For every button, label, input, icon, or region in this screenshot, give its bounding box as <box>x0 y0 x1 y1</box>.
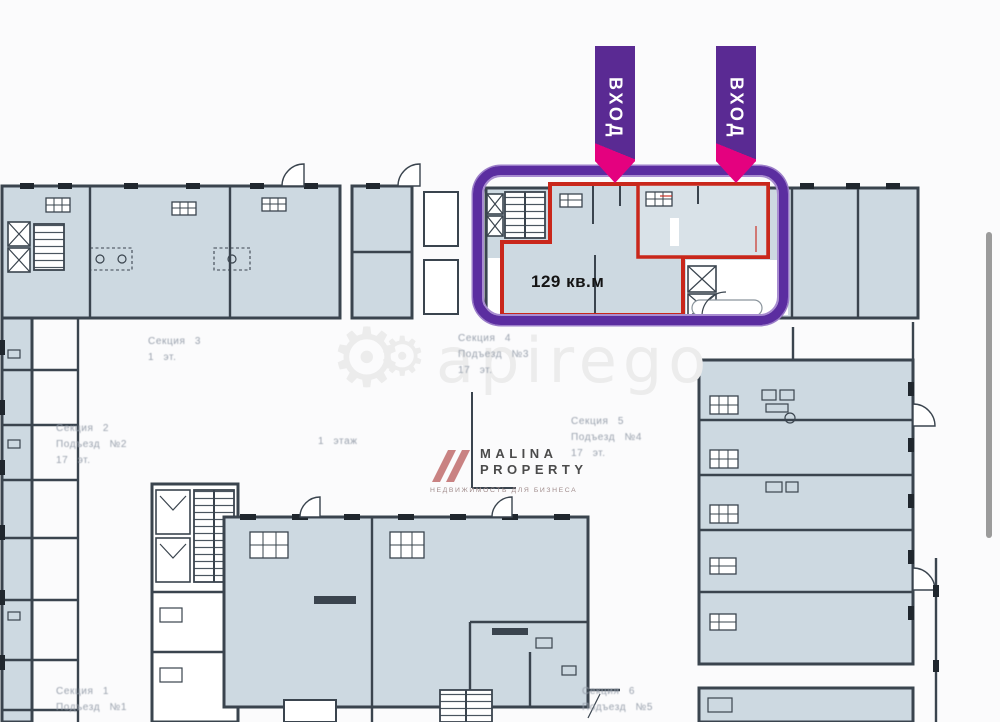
scrollbar-thumb[interactable] <box>986 232 992 538</box>
plan-label-section-6: Секция 6Подъезд №5 <box>582 684 653 716</box>
entrance-banner-label: ВХОД <box>605 77 626 183</box>
entrance-banner-1: ВХОД <box>595 46 635 183</box>
entrance-banner-2: ВХОД <box>716 46 756 183</box>
door-arc-icon <box>398 164 420 186</box>
plan-label-section-1: Секция 1Подъезд №1 <box>56 684 127 716</box>
door-arc-icon <box>492 497 512 517</box>
highlight-frame <box>473 166 788 325</box>
door-arc-icon <box>300 497 320 517</box>
gear-icon: ⚙ <box>378 330 426 384</box>
plan-label-section-3: Секция 31 эт. <box>148 334 201 366</box>
logo-name-line1: MALINA <box>480 446 588 462</box>
door-arc-icon <box>282 164 304 186</box>
logo-mark-icon <box>430 444 476 484</box>
plan-label-section-2: Секция 2Подъезд №217 эт. <box>56 421 127 469</box>
left-wing <box>0 318 78 722</box>
unit-area-label: 129 кв.м <box>531 272 604 292</box>
right-wing <box>699 322 939 722</box>
door-arc-icon <box>913 404 935 426</box>
entrance-banner-label: ВХОД <box>726 77 747 183</box>
plan-label-section-4: Секция 4Подъезд №317 эт. <box>458 331 529 379</box>
stairs-icon <box>34 224 64 270</box>
logo-tagline: НЕДВИЖИМОСТЬ ДЛЯ БИЗНЕСА <box>430 487 570 494</box>
door-arc-icon <box>913 568 935 590</box>
brand-logo: MALINA PROPERTY НЕДВИЖИМОСТЬ ДЛЯ БИЗНЕСА <box>430 444 570 494</box>
plan-label-floor-1: 1 этаж <box>318 434 358 450</box>
floorplan-page: ⚙ ⚙ apirego 129 кв.м ВХОД ВХОД Секция 31… <box>0 0 1000 722</box>
bottom-wing <box>224 392 620 722</box>
logo-name-line2: PROPERTY <box>480 462 588 478</box>
